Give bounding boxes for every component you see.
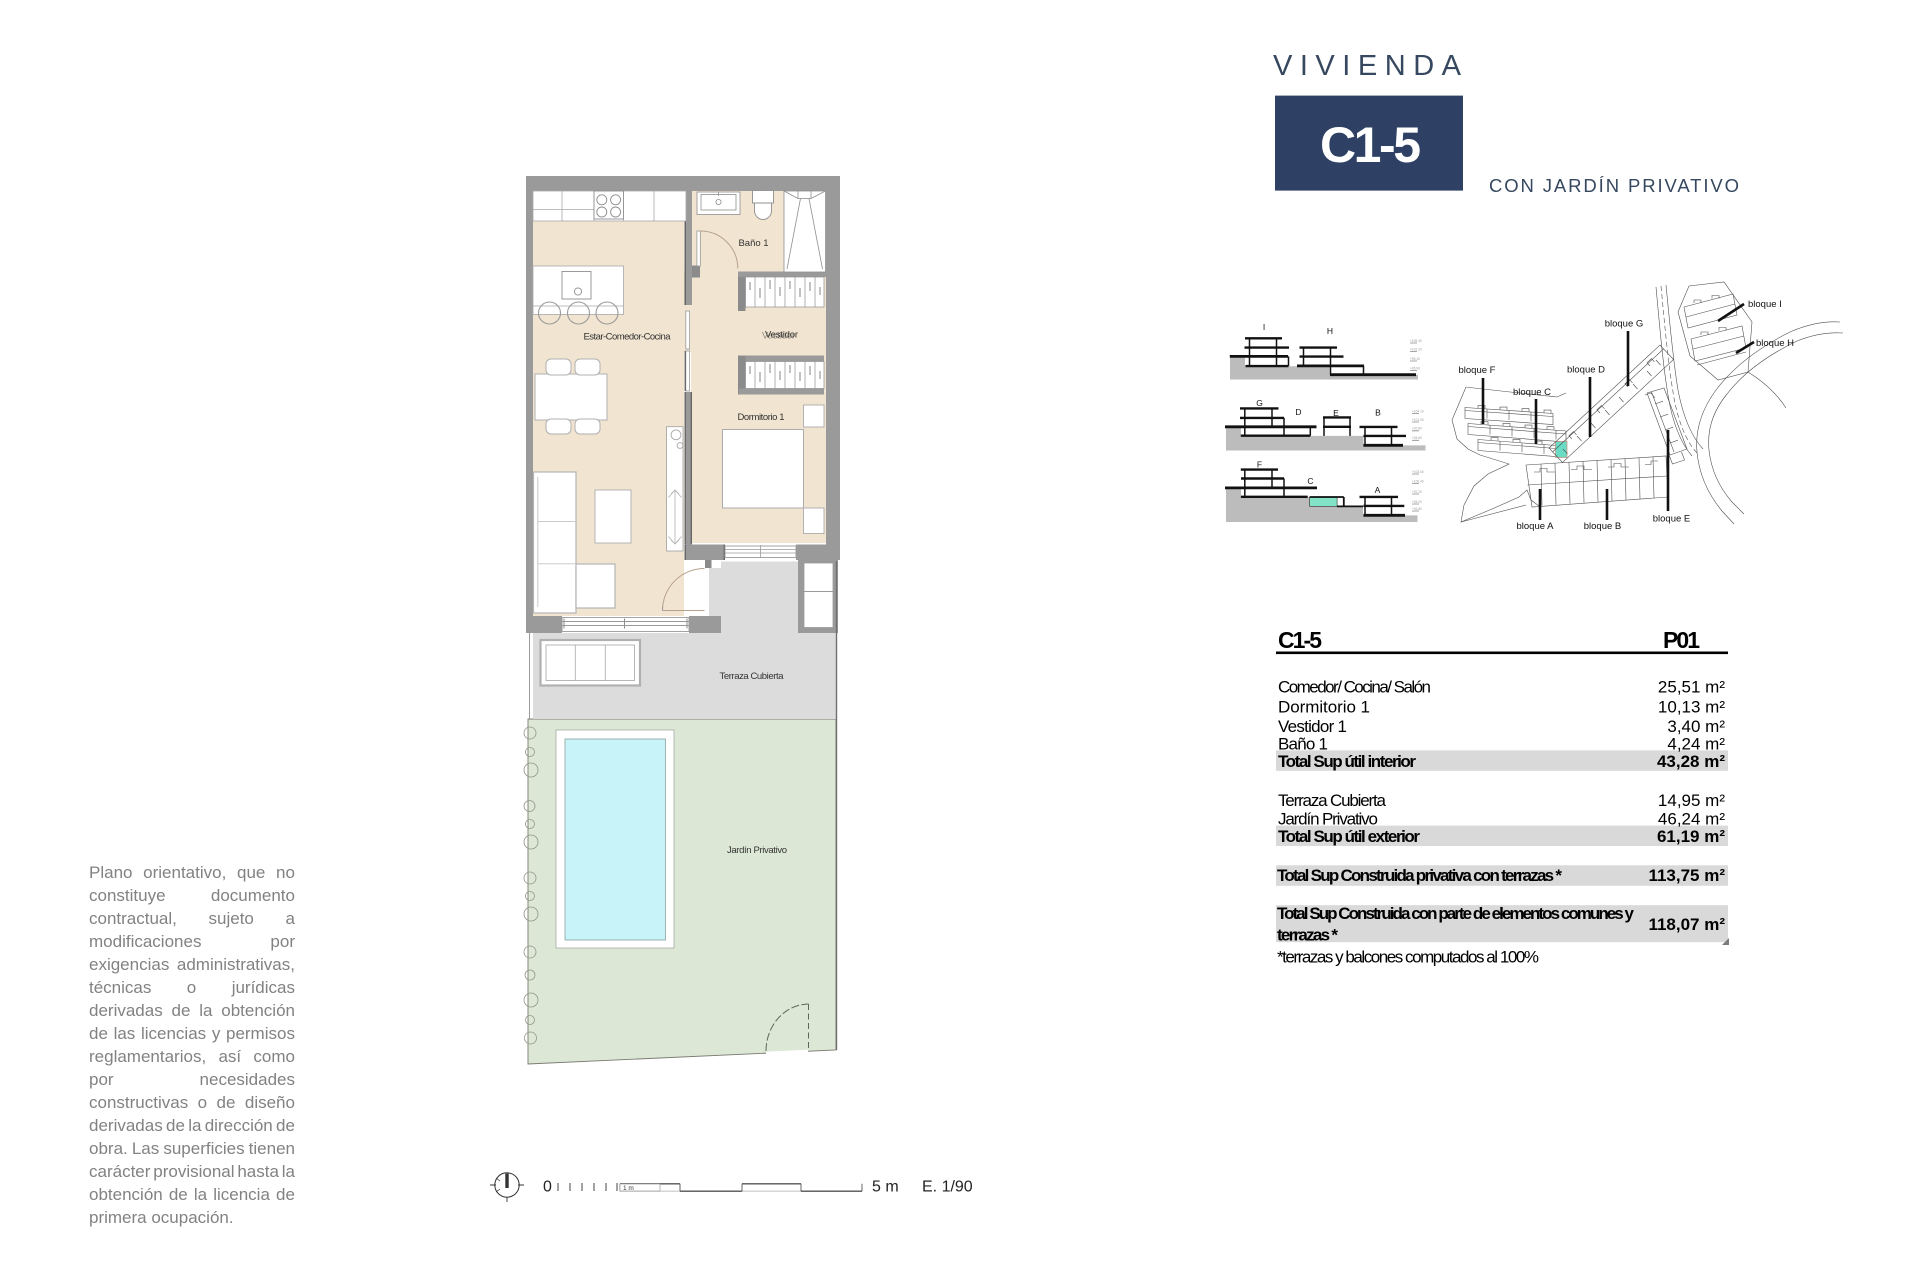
svg-text:43,28 m²: 43,28 m² [1657,752,1725,771]
svg-text:Vestidor: Vestidor [762,331,795,342]
svg-text:Vestidor 1: Vestidor 1 [1278,717,1347,736]
svg-text:C: C [1307,476,1313,486]
svg-text:25,51 m²: 25,51 m² [1658,678,1725,697]
svg-text:46,24 m²: 46,24 m² [1658,810,1725,829]
svg-text:bloque C: bloque C [1513,387,1551,398]
svg-text:D: D [1295,407,1301,417]
svg-text:Baño 1: Baño 1 [1278,734,1328,753]
svg-text:Estar-Comedor-Cocina: Estar-Comedor-Cocina [584,332,672,343]
svg-text:bloque G: bloque G [1605,319,1644,330]
svg-text:bloque E: bloque E [1653,514,1691,525]
svg-text:E: E [1333,408,1339,418]
svg-text:10,13 m²: 10,13 m² [1658,697,1725,716]
svg-text:VIVIENDA: VIVIENDA [1273,50,1468,82]
svg-text:+94.60: +94.60 [1412,436,1422,440]
svg-text:+105.40: +105.40 [1410,339,1422,343]
svg-text:I: I [1263,322,1265,332]
svg-text:F: F [1257,460,1262,470]
svg-text:terrazas *: terrazas * [1277,926,1338,945]
svg-text:Comedor/ Cocina/ Salón: Comedor/ Cocina/ Salón [1278,678,1431,697]
svg-text:+103.60: +103.60 [1412,470,1424,474]
svg-text:0: 0 [543,1179,552,1196]
svg-text:+104.10: +104.10 [1412,409,1424,413]
svg-text:Dormitorio 1: Dormitorio 1 [1278,697,1370,716]
svg-text:Total Sup útil exterior: Total Sup útil exterior [1278,827,1420,846]
svg-text:3,40 m²: 3,40 m² [1667,717,1725,736]
svg-text:+99.10: +99.10 [1410,357,1420,361]
svg-text:C1-5: C1-5 [1320,117,1421,173]
svg-text:+102.20: +102.20 [1410,347,1422,351]
svg-text:113,75 m²: 113,75 m² [1648,866,1725,885]
svg-text:+95.90: +95.90 [1410,366,1420,370]
svg-text:C1-5: C1-5 [1278,627,1322,653]
svg-text:G: G [1256,398,1263,408]
svg-text:+94.00: +94.00 [1412,500,1422,504]
svg-text:P01: P01 [1663,627,1700,653]
svg-text:bloque F: bloque F [1459,365,1496,376]
svg-text:E. 1/90: E. 1/90 [922,1179,973,1196]
svg-text:Baño 1: Baño 1 [739,238,769,249]
svg-text:H: H [1327,326,1333,336]
svg-text:Jardín Privativo: Jardín Privativo [1278,810,1378,829]
svg-text:*terrazas y balcones computado: *terrazas y balcones computados al 100% [1277,948,1539,967]
svg-text:+100.40: +100.40 [1412,479,1424,483]
svg-text:61,19 m²: 61,19 m² [1657,827,1725,846]
svg-text:Total Sup Construida con parte: Total Sup Construida con parte de elemen… [1277,904,1635,923]
svg-text:1 m: 1 m [623,1185,634,1192]
svg-text:A: A [1375,485,1381,495]
svg-text:bloque B: bloque B [1584,521,1622,532]
svg-text:+97.20: +97.20 [1412,490,1422,494]
svg-text:B: B [1375,408,1381,418]
svg-text:+97.80: +97.80 [1412,427,1422,431]
svg-text:Jardín Privativo: Jardín Privativo [727,845,787,856]
svg-text:118,07 m²: 118,07 m² [1648,915,1725,934]
svg-text:4,24 m²: 4,24 m² [1667,734,1725,753]
svg-text:+101.00: +101.00 [1412,418,1424,422]
svg-text:bloque D: bloque D [1567,365,1605,376]
svg-text:Dormitorio 1: Dormitorio 1 [738,412,785,423]
svg-text:Total Sup Construida privativa: Total Sup Construida privativa con terra… [1277,866,1562,885]
svg-text:+91.80: +91.80 [1412,507,1422,511]
svg-text:Terraza Cubierta: Terraza Cubierta [1278,791,1387,810]
svg-text:Terraza Cubierta: Terraza Cubierta [720,671,785,682]
svg-text:Total Sup útil interior: Total Sup útil interior [1278,752,1416,771]
svg-text:bloque H: bloque H [1756,338,1794,349]
svg-text:CON JARDÍN PRIVATIVO: CON JARDÍN PRIVATIVO [1489,175,1741,196]
svg-text:14,95 m²: 14,95 m² [1658,791,1725,810]
svg-text:5 m: 5 m [872,1179,899,1196]
svg-text:bloque A: bloque A [1517,521,1555,532]
svg-text:bloque I: bloque I [1748,299,1782,310]
